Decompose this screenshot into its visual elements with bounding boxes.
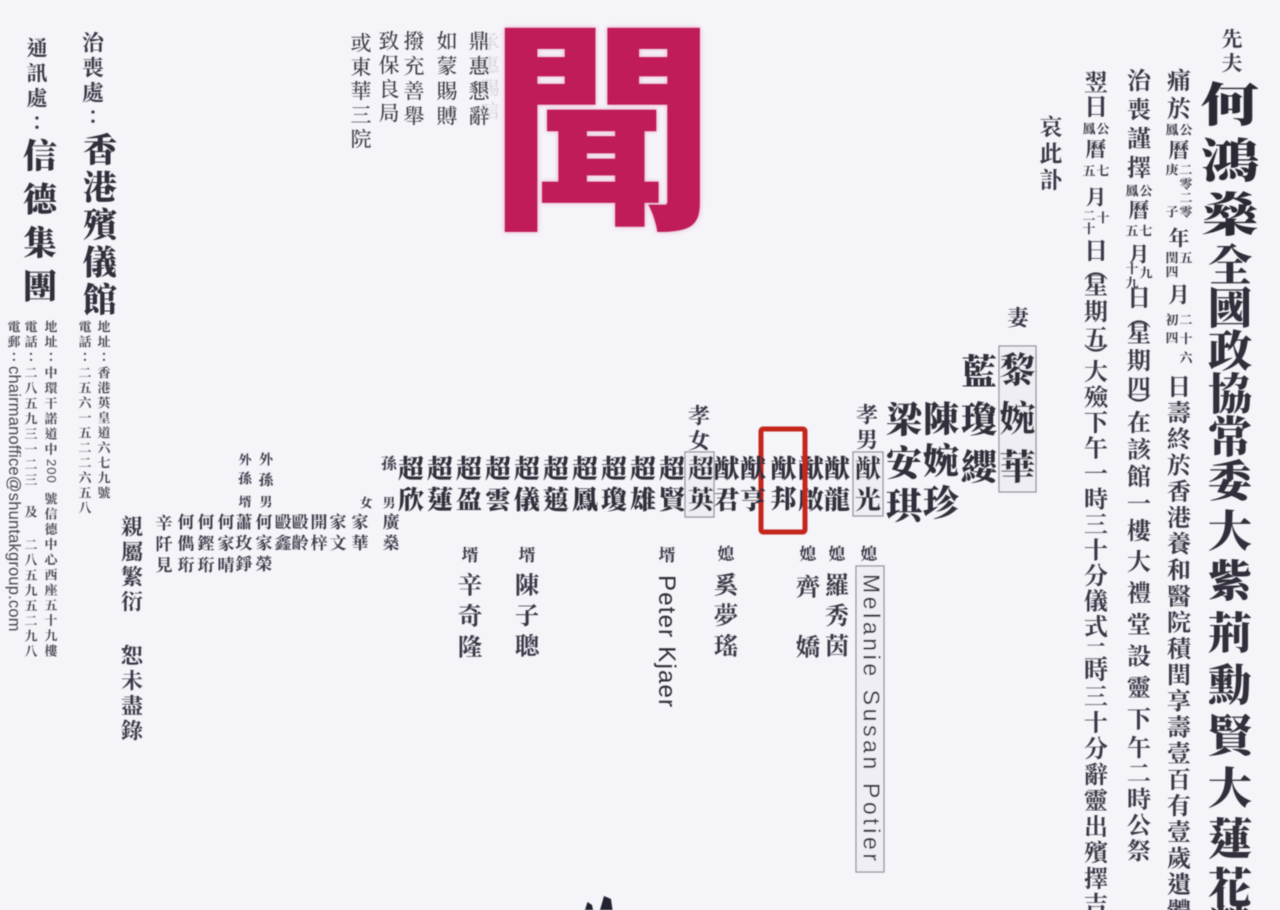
svg-text:200: 200 <box>44 459 59 484</box>
svg-text:Melanie Susan Potier: Melanie Susan Potier <box>859 574 885 865</box>
svg-text:Peter Kjaer: Peter Kjaer <box>653 575 680 708</box>
svg-text:chairmanoffice@shuntakgroup.co: chairmanoffice@shuntakgroup.com <box>5 366 23 632</box>
